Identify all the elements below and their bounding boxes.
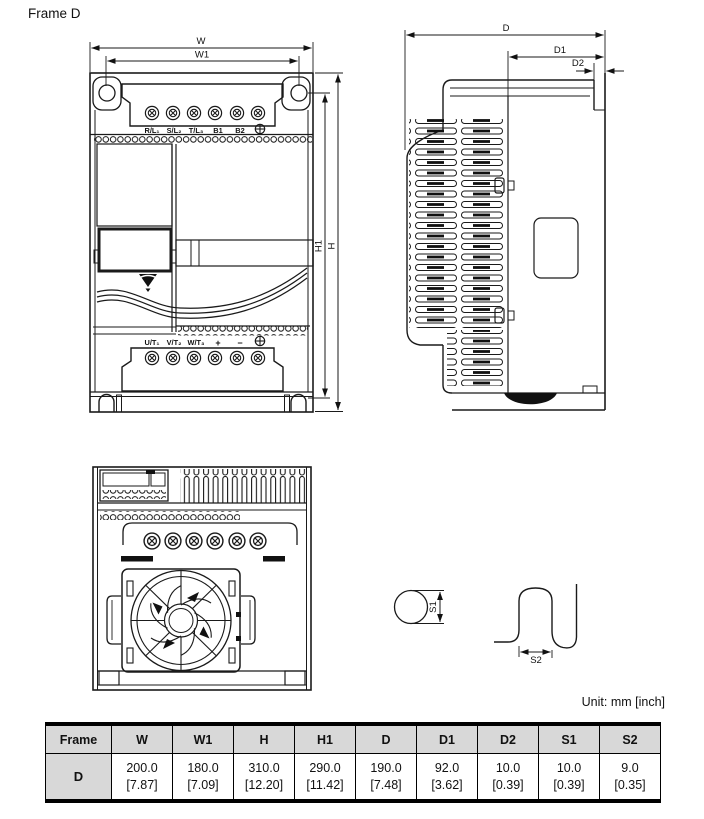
value-inch: [0.35] — [600, 777, 660, 794]
fan-bracket-left — [107, 596, 121, 644]
dim-label-w1: W1 — [195, 50, 209, 61]
keypad-opening — [97, 144, 172, 226]
fan-bracket-right — [236, 596, 255, 644]
value-inch: [7.48] — [356, 777, 416, 794]
molded-marking — [121, 556, 153, 562]
dim-label-w: W — [197, 36, 206, 47]
mounting-hole-top-right — [282, 77, 310, 110]
nameplate-recess — [534, 218, 578, 278]
cell-d2: 10.0[0.39] — [478, 754, 539, 802]
dim-label-s1: S1 — [428, 601, 439, 613]
dim-label-h: H — [327, 242, 338, 249]
cable-clamp-strip — [100, 511, 240, 520]
value-inch: [7.87] — [112, 777, 172, 794]
value-inch: [7.09] — [173, 777, 233, 794]
table-row: D 200.0[7.87] 180.0[7.09] 310.0[12.20] 2… — [46, 754, 661, 802]
value-mm: 190.0 — [356, 760, 416, 777]
value-mm: 92.0 — [417, 760, 477, 777]
header-d1: D1 — [417, 724, 478, 754]
terminal-label-b1: B1 — [213, 126, 222, 135]
terminal-screw — [208, 106, 221, 119]
mounting-slot-bottom-left — [99, 395, 114, 412]
front-body-outline — [90, 73, 313, 412]
value-inch: [0.39] — [478, 777, 538, 794]
value-inch: [12.20] — [234, 777, 294, 794]
terminal-screw — [165, 533, 181, 549]
terminal-label-v-t2: V/T₂ — [167, 338, 182, 347]
mounting-slot-detail — [494, 584, 577, 648]
front-view: R/L₁ S/L₂ T/L₃ B1 B2 — [90, 36, 343, 412]
front-band — [176, 240, 313, 266]
terminal-screw — [230, 351, 243, 364]
header-frame: Frame — [46, 724, 112, 754]
terminal-screw — [186, 533, 202, 549]
dimension-w1: W1 — [106, 50, 299, 87]
value-mm: 10.0 — [539, 760, 599, 777]
unit-label: Unit: mm [inch] — [582, 695, 665, 709]
value-mm: 180.0 — [173, 760, 233, 777]
terminal-label-b2: B2 — [235, 126, 244, 135]
mounting-slot-bottom-right — [291, 395, 306, 412]
terminal-screw — [251, 106, 264, 119]
dimension-table: Frame W W1 H H1 D D1 D2 S1 S2 D 200.0[7.… — [45, 722, 661, 803]
cell-h1: 290.0[11.42] — [295, 754, 356, 802]
value-inch: [11.42] — [295, 777, 355, 794]
molded-marking — [263, 556, 285, 562]
header-h1: H1 — [295, 724, 356, 754]
header-h: H — [234, 724, 295, 754]
terminal-screw — [187, 106, 200, 119]
cable-clamp-strip — [94, 135, 312, 144]
terminal-screw — [251, 351, 264, 364]
value-mm: 310.0 — [234, 760, 294, 777]
dim-label-d1: D1 — [554, 45, 566, 56]
terminal-screw — [145, 106, 158, 119]
terminal-screw — [187, 351, 200, 364]
value-inch: [0.39] — [539, 777, 599, 794]
terminal-label-plus: + — [215, 338, 220, 348]
wiring-curves — [97, 268, 307, 318]
value-mm: 290.0 — [295, 760, 355, 777]
cell-s1: 10.0[0.39] — [539, 754, 600, 802]
header-d: D — [356, 724, 417, 754]
header-s2: S2 — [600, 724, 661, 754]
value-mm: 200.0 — [112, 760, 172, 777]
terminal-label-r-l1: R/L₁ — [145, 126, 160, 135]
value-inch: [3.62] — [417, 777, 477, 794]
manual-page: { "page": { "title": "Frame D", "unit_la… — [0, 0, 704, 819]
terminal-label-minus: − — [237, 338, 242, 348]
header-d2: D2 — [478, 724, 539, 754]
cooling-fan — [122, 569, 240, 672]
header-w: W — [112, 724, 173, 754]
dim-label-d: D — [503, 23, 510, 34]
terminal-label-t-l3: T/L₃ — [189, 126, 204, 135]
table-header-row: Frame W W1 H H1 D D1 D2 S1 S2 — [46, 724, 661, 754]
terminal-label-s-l2: S/L₂ — [167, 126, 182, 135]
dim-label-h1: H1 — [314, 240, 325, 252]
control-terminal-block — [100, 470, 168, 501]
terminal-label-w-t3: W/T₃ — [188, 338, 205, 347]
s1-detail: S1 — [395, 591, 445, 624]
terminal-screw — [208, 351, 221, 364]
s2-detail: S2 — [494, 584, 577, 666]
dim-label-d2: D2 — [572, 58, 584, 69]
terminal-label-u-t1: U/T₁ — [145, 338, 160, 347]
cell-d: 190.0[7.48] — [356, 754, 417, 802]
cell-h: 310.0[12.20] — [234, 754, 295, 802]
cell-d1: 92.0[3.62] — [417, 754, 478, 802]
mounting-hole-detail — [395, 591, 428, 624]
ground-terminal-icon — [255, 336, 264, 345]
ground-terminal-icon — [255, 124, 264, 133]
heatsink-fins — [180, 469, 306, 503]
terminal-screw — [250, 533, 266, 549]
terminal-screw — [144, 533, 160, 549]
cell-frame: D — [46, 754, 112, 802]
keypad-display — [99, 229, 171, 271]
cell-w: 200.0[7.87] — [112, 754, 173, 802]
terminal-screw — [207, 533, 223, 549]
cable-clamp-strip — [178, 327, 308, 336]
terminal-screw — [229, 533, 245, 549]
mounting-hole-top-left — [93, 77, 121, 110]
header-w1: W1 — [173, 724, 234, 754]
terminal-screw — [166, 351, 179, 364]
side-view: D D1 D2 — [405, 23, 624, 410]
delta-logo — [139, 274, 157, 292]
heatsink-vent-slots — [409, 119, 505, 328]
foot — [285, 671, 305, 685]
terminal-screw — [166, 106, 179, 119]
header-s1: S1 — [539, 724, 600, 754]
dim-label-s2: S2 — [530, 655, 542, 666]
cell-w1: 180.0[7.09] — [173, 754, 234, 802]
dimension-drawings: R/L₁ S/L₂ T/L₃ B1 B2 — [0, 0, 704, 705]
value-mm: 10.0 — [478, 760, 538, 777]
terminal-screw — [145, 351, 158, 364]
fan-guard-spokes — [131, 571, 231, 671]
cable-gland — [504, 393, 557, 404]
terminal-screw — [230, 106, 243, 119]
bottom-view — [93, 467, 311, 690]
cell-s2: 9.0[0.35] — [600, 754, 661, 802]
heatsink-vent-slots — [447, 330, 505, 386]
value-mm: 9.0 — [600, 760, 660, 777]
foot — [99, 671, 119, 685]
